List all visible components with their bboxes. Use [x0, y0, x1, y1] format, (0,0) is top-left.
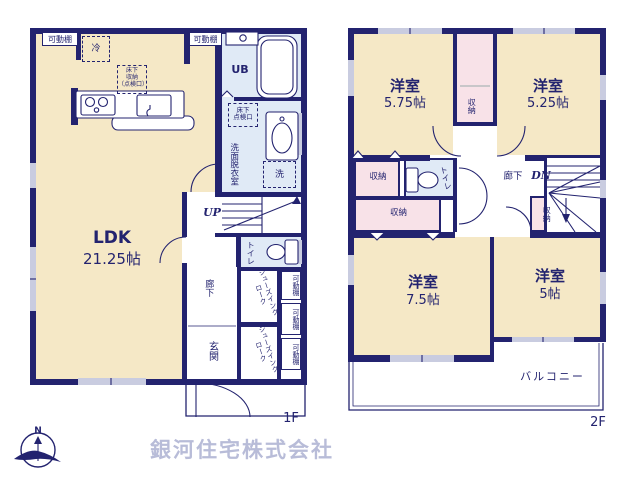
kitchen-counter-icon: [76, 91, 194, 130]
hallway-label-2f: 廊下: [494, 172, 532, 183]
movable-shelf-box: 可動棚: [281, 303, 301, 335]
room-2f-2-name: 洋室: [523, 78, 573, 95]
movable-shelf-box: 可動棚: [189, 32, 222, 46]
door-arc: [160, 237, 186, 263]
toilet-icon-1f: [267, 240, 298, 264]
stairs-up-icon: [219, 196, 301, 233]
door-arc: [506, 207, 531, 232]
toilet-label-1f: トイレ: [246, 239, 255, 267]
washer-space: 洗: [263, 161, 296, 188]
company-name: 銀河住宅株式会社: [150, 438, 370, 462]
room-2f-1-size: 5.75帖: [375, 97, 435, 112]
closet-mark: [426, 233, 440, 240]
underfloor-storage-line: （点検口）: [118, 82, 146, 89]
room-2f-4-size: 5帖: [520, 288, 580, 303]
compass-icon: [14, 433, 61, 467]
floor-1-label: 1F: [276, 412, 306, 427]
compass-north-label: N: [31, 426, 45, 436]
door-arc: [191, 164, 219, 192]
stairs-down-label: DN: [528, 170, 554, 183]
door-arc: [433, 126, 461, 156]
room-2f-3-size: 7.5帖: [393, 294, 453, 309]
underfloor-storage-hatch: 床下 収納 （点検口）: [117, 65, 147, 94]
room-2f-1-name: 洋室: [380, 78, 430, 95]
closet-c-label: 収納: [542, 200, 551, 228]
ldk-size: 21.25帖: [62, 251, 162, 268]
stairs-down-icon: [547, 158, 600, 232]
door-mark: [221, 91, 233, 97]
movable-shelf-box: 可動棚: [42, 32, 78, 46]
movable-shelf-box: 可動棚: [281, 338, 301, 370]
washroom-label: 洗面脱衣室: [228, 138, 238, 190]
washbasin-icon: [266, 112, 298, 160]
entrance-door-arc: [196, 383, 250, 417]
floorplan-canvas: 可動棚 可動棚 冷 床下 収納 （点検口） UB 床下 点検口 洗面脱衣室 洗 …: [0, 0, 640, 480]
door-arc: [497, 126, 525, 156]
closet-center-label: 収納: [467, 92, 476, 120]
room-2f-2-size: 5.25帖: [518, 97, 578, 112]
floor-2-label: 2F: [583, 416, 613, 431]
balcony-label: バルコニー: [505, 371, 600, 384]
door-arc: [459, 168, 487, 224]
entrance-label: 玄関: [206, 338, 218, 364]
underfloor-hatch: 床下 点検口: [228, 103, 258, 127]
closet-mark: [389, 151, 401, 158]
closet-mark: [352, 151, 364, 158]
underfloor-hatch-line: 点検口: [229, 114, 257, 121]
closet-mark: [370, 233, 384, 240]
movable-shelf-box: 可動棚: [281, 271, 301, 300]
closet-a-label: 収納: [356, 173, 400, 183]
stairs-up-label: UP: [199, 207, 225, 220]
unit-bath-label: UB: [225, 64, 255, 77]
room-2f-3-name: 洋室: [398, 274, 448, 291]
room-2f-4-name: 洋室: [525, 268, 575, 285]
closet-b-label: 収納: [360, 209, 437, 219]
fridge-space: 冷: [82, 36, 110, 62]
toilet-icon-2f: [406, 168, 438, 192]
hallway-label-1f: 廊下: [203, 276, 213, 300]
ldk-name: LDK: [67, 229, 157, 249]
